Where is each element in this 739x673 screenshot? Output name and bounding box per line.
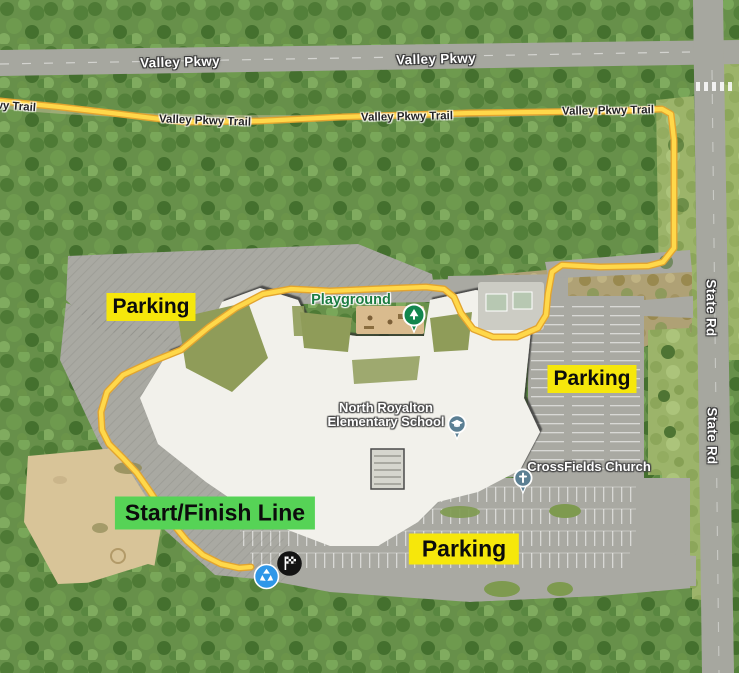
- course-map: Valley Pkwy Valley Pkwy State Rd State R…: [0, 0, 739, 673]
- parking-tag-right: Parking: [547, 365, 636, 393]
- se-driveway: [642, 552, 696, 586]
- satellite-map-svg: [0, 0, 739, 673]
- gym-structure: [371, 449, 404, 489]
- parking-tag-left: Parking: [106, 293, 195, 321]
- basketball-court: [478, 282, 544, 330]
- parking-tag-bottom: Parking: [409, 534, 519, 565]
- start-finish-tag: Start/Finish Line: [115, 497, 315, 530]
